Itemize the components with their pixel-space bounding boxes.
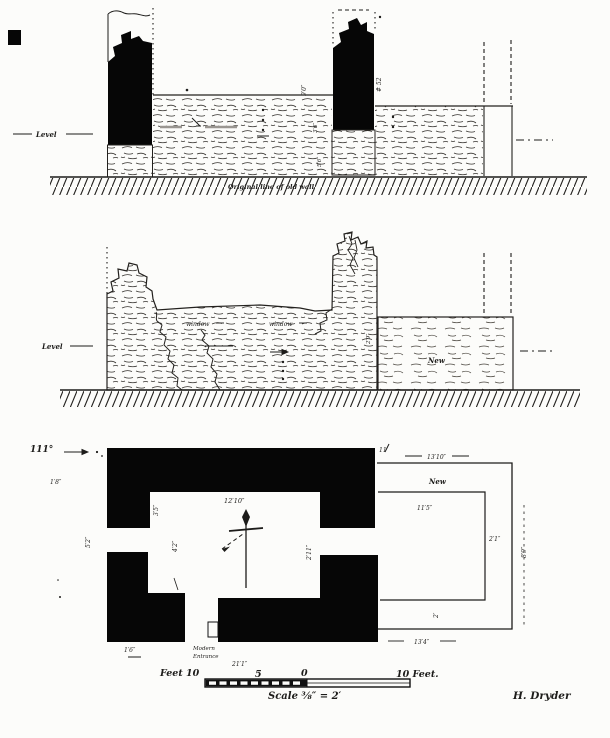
dim-left-opening: 5′2″ bbox=[85, 536, 92, 548]
scale-text: Scale ⅜″ = 2′ bbox=[268, 691, 342, 702]
dim-new-right: 8′9″ bbox=[521, 546, 528, 558]
scale-zero-label: 0 bbox=[301, 668, 308, 679]
new-extension-outline bbox=[377, 444, 524, 641]
base-dim-large: 5′6″ bbox=[317, 156, 323, 167]
scale-left-label: Feet 10 bbox=[159, 668, 200, 679]
door-rebate bbox=[208, 622, 218, 637]
drawing-canvas: Level bbox=[0, 0, 610, 738]
right-wall-section bbox=[375, 40, 553, 176]
level-label: Level bbox=[35, 130, 57, 139]
new-wall-block: New bbox=[378, 253, 513, 390]
entrance-label-2: Entrance bbox=[192, 654, 219, 660]
left-pier bbox=[108, 8, 154, 177]
dim-left-wall-upper: 3′5″ bbox=[153, 504, 160, 516]
dim-new-wall-thickness: 2′1″ bbox=[488, 536, 501, 543]
dim-north-gap: 11′ bbox=[379, 447, 389, 454]
dim-new-outer-bottom: 13′4″ bbox=[414, 639, 430, 646]
dim-wall-top-left: 1′8″ bbox=[50, 479, 62, 486]
pier-height-dim: 9′0″ bbox=[301, 84, 308, 96]
signature: H. Dryder bbox=[512, 690, 572, 702]
north-arrow-icon bbox=[222, 509, 263, 588]
base-dim-small: 3′6″ bbox=[313, 122, 319, 133]
centre-wall bbox=[153, 89, 333, 178]
dim-interior-width: 12′10″ bbox=[224, 497, 245, 505]
ink-blot bbox=[8, 30, 21, 45]
dim-east-opening: 2′11″ bbox=[306, 544, 313, 561]
ground-middle bbox=[60, 390, 580, 407]
ruined-wall bbox=[107, 232, 377, 390]
middle-elevation: Level window window 2′9″ New bbox=[41, 232, 580, 407]
scale-bar: Feet 10 5 0 10 Feet. Scale ⅜″ = 2′ bbox=[159, 668, 439, 702]
window-left-label: window bbox=[186, 321, 210, 328]
entrance-label-1: Modern bbox=[192, 646, 215, 652]
dim-left-wall-lower: 4′2″ bbox=[172, 540, 179, 553]
dim-new-inner-width: 11′5″ bbox=[417, 505, 433, 512]
angle-label: 111° bbox=[30, 445, 53, 455]
window-right-label: window bbox=[269, 321, 293, 328]
dim-new-bottom-gap: 2′ bbox=[433, 612, 440, 619]
dim-new-outer-width: 13′10″ bbox=[427, 454, 447, 461]
ground-caption: Original line of old wall bbox=[228, 183, 315, 191]
scale-bar-divisions bbox=[209, 681, 300, 684]
new-wall-label: New bbox=[427, 356, 446, 365]
pier-dim: 2′9″ bbox=[366, 333, 372, 345]
scanned-drawing-sheet: Level bbox=[0, 0, 610, 738]
existing-walls bbox=[107, 448, 378, 642]
pier-number: # 52 bbox=[376, 77, 383, 92]
dim-entrance-width: 1′6″ bbox=[124, 647, 136, 654]
new-label: New bbox=[428, 477, 447, 486]
ground-plan: 111° 1′8″ 5′2″ 3′5″ 4′2″ 12′10″ 2′11″ 11… bbox=[30, 444, 528, 668]
level-label: Level bbox=[41, 342, 63, 351]
dim-overall: 21′1″ bbox=[231, 661, 248, 668]
ground-upper: Original line of old wall bbox=[50, 177, 587, 195]
upper-elevation: Level bbox=[8, 8, 587, 195]
